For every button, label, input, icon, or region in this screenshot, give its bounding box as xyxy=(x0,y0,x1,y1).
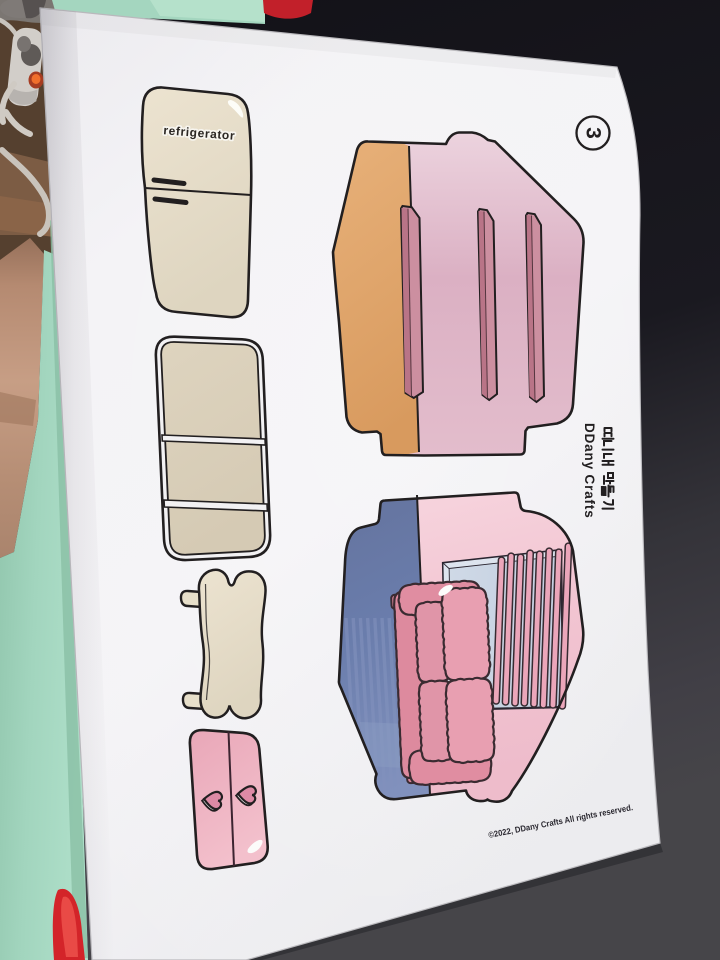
svg-text:DDany Crafts: DDany Crafts xyxy=(582,423,597,518)
svg-text:3: 3 xyxy=(582,127,605,139)
